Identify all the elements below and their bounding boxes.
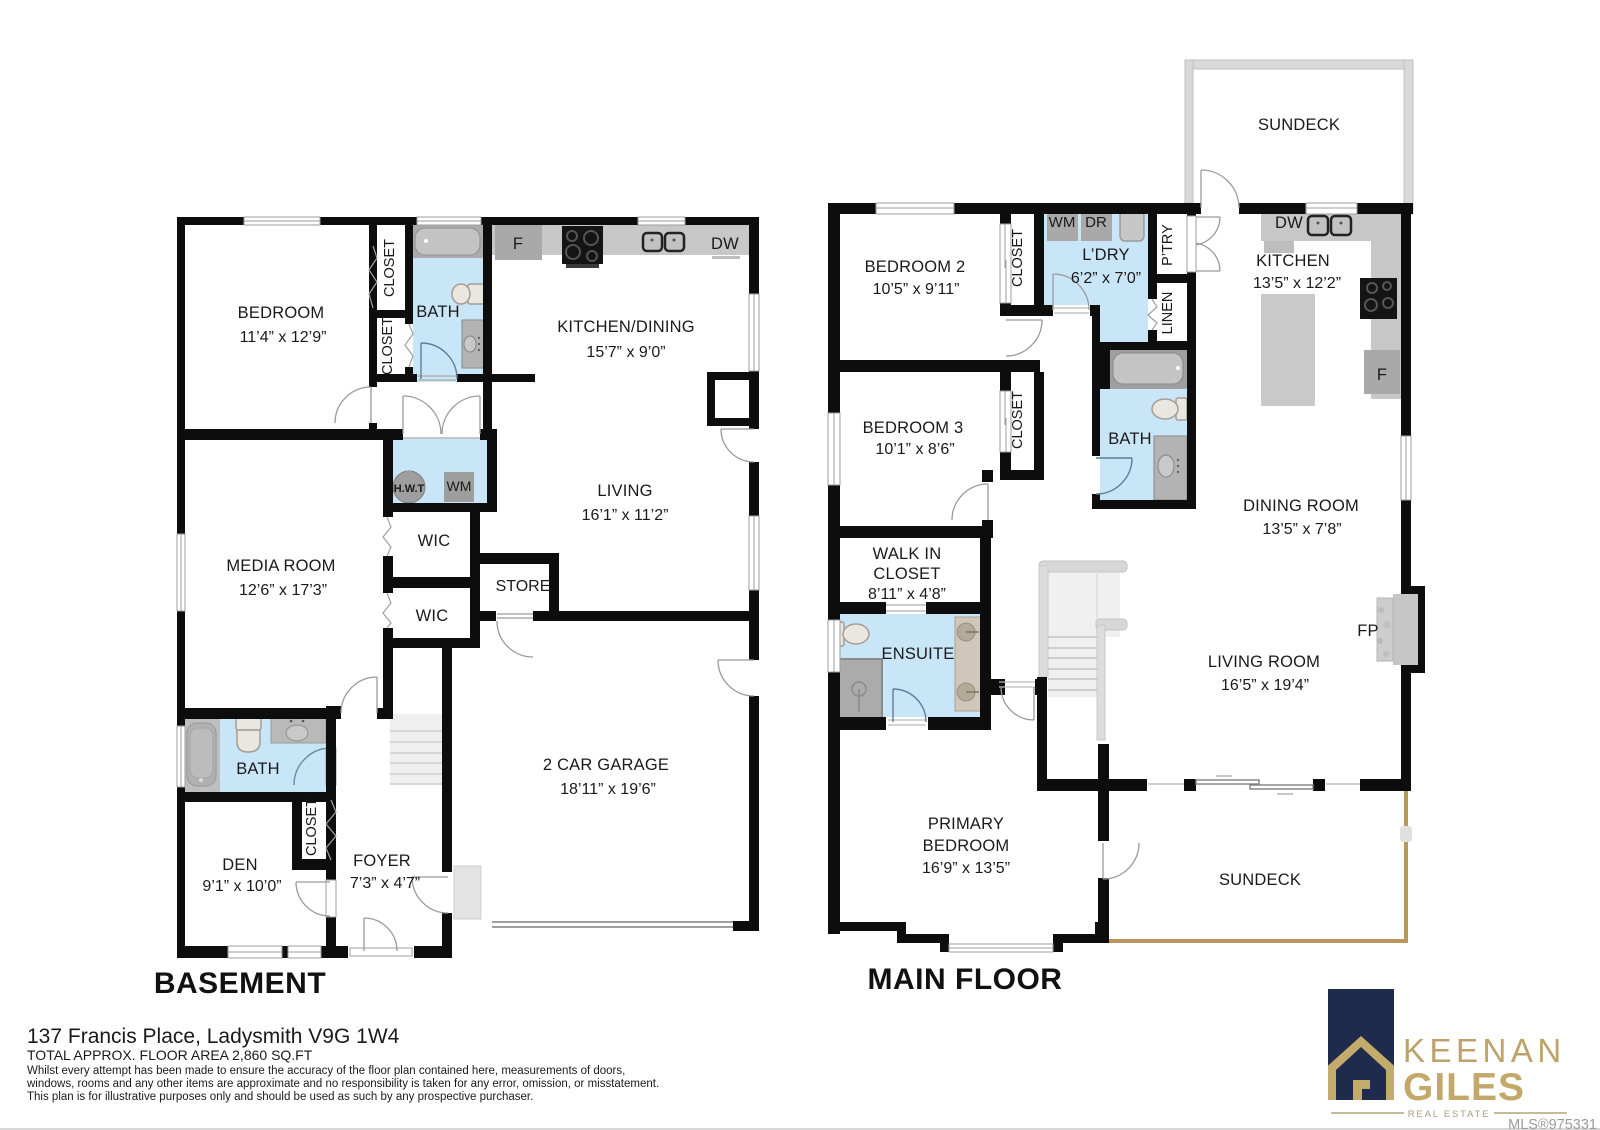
svg-text:GILES: GILES: [1403, 1066, 1525, 1109]
svg-text:SUNDECK: SUNDECK: [1258, 116, 1340, 134]
svg-text:TOTAL APPROX. FLOOR AREA 2,860: TOTAL APPROX. FLOOR AREA 2,860 SQ.FT: [27, 1047, 313, 1063]
svg-text:MAIN FLOOR: MAIN FLOOR: [868, 963, 1063, 996]
svg-text:BATH: BATH: [1108, 430, 1152, 448]
svg-text:WM: WM: [447, 478, 472, 494]
svg-text:BASEMENT: BASEMENT: [154, 967, 326, 1000]
svg-text:P’TRY: P’TRY: [1160, 224, 1176, 266]
svg-text:F: F: [513, 235, 523, 253]
svg-text:CLOSET: CLOSET: [382, 239, 398, 297]
svg-text:LIVING: LIVING: [597, 482, 652, 500]
svg-text:WIC: WIC: [418, 532, 451, 550]
svg-text:16’5” x 19’4”: 16’5” x 19’4”: [1221, 677, 1309, 694]
svg-text:12’6” x 17’3”: 12’6” x 17’3”: [239, 582, 327, 599]
svg-text:KEENAN: KEENAN: [1403, 1032, 1566, 1069]
svg-text:FOYER: FOYER: [353, 852, 411, 870]
svg-text:18’11” x 19’6”: 18’11” x 19’6”: [560, 781, 656, 798]
svg-text:DINING ROOM: DINING ROOM: [1243, 497, 1359, 515]
svg-text:LINEN: LINEN: [1160, 292, 1176, 335]
svg-text:16’1” x 11’2”: 16’1” x 11’2”: [582, 507, 669, 524]
svg-text:8’11” x 4’8”: 8’11” x 4’8”: [868, 586, 946, 603]
svg-text:WALK IN: WALK IN: [873, 545, 942, 563]
svg-text:H.W.T: H.W.T: [394, 483, 425, 495]
svg-text:SUNDECK: SUNDECK: [1219, 871, 1301, 889]
svg-text:7’3” x 4’7”: 7’3” x 4’7”: [350, 875, 420, 892]
svg-text:BATH: BATH: [416, 303, 460, 321]
svg-text:ENSUITE: ENSUITE: [882, 645, 955, 663]
svg-text:137 Francis Place, Ladysmith V: 137 Francis Place, Ladysmith V9G 1W4: [27, 1025, 400, 1048]
svg-text:2 CAR GARAGE: 2 CAR GARAGE: [543, 756, 669, 774]
svg-text:11’4” x 12’9”: 11’4” x 12’9”: [240, 329, 327, 346]
svg-text:PRIMARY: PRIMARY: [928, 815, 1004, 833]
svg-text:F: F: [1377, 366, 1387, 384]
svg-text:BEDROOM 2: BEDROOM 2: [865, 258, 966, 276]
svg-text:KITCHEN: KITCHEN: [1256, 252, 1330, 270]
svg-text:CLOSET: CLOSET: [873, 565, 940, 583]
svg-text:L’DRY: L’DRY: [1082, 246, 1129, 264]
svg-text:MEDIA ROOM: MEDIA ROOM: [226, 557, 335, 575]
svg-text:REAL ESTATE: REAL ESTATE: [1408, 1109, 1490, 1120]
svg-text:6’2” x 7’0”: 6’2” x 7’0”: [1071, 270, 1141, 287]
svg-text:10’5” x 9’11”: 10’5” x 9’11”: [873, 281, 960, 298]
svg-text:10’1” x 8’6”: 10’1” x 8’6”: [875, 441, 954, 458]
svg-text:This plan is for illustrative: This plan is for illustrative purposes o…: [27, 1091, 533, 1103]
svg-text:9’1” x 10’0”: 9’1” x 10’0”: [202, 878, 281, 895]
svg-text:15’7” x 9’0”: 15’7” x 9’0”: [586, 344, 665, 361]
svg-text:BATH: BATH: [236, 760, 280, 778]
svg-text:CLOSET: CLOSET: [380, 317, 396, 375]
svg-text:Whilst every attempt has been: Whilst every attempt has been made to en…: [27, 1065, 625, 1077]
svg-text:16’9” x 13’5”: 16’9” x 13’5”: [922, 860, 1010, 877]
svg-text:MLS®975331: MLS®975331: [1508, 1117, 1597, 1130]
svg-text:CLOSET: CLOSET: [1010, 391, 1026, 449]
svg-text:WIC: WIC: [416, 607, 449, 625]
svg-text:DW: DW: [711, 235, 739, 253]
svg-text:WM: WM: [1049, 214, 1076, 231]
svg-text:windows, rooms and any other i: windows, rooms and any other items are a…: [26, 1078, 659, 1090]
svg-text:STORE: STORE: [496, 578, 551, 595]
svg-text:BEDROOM: BEDROOM: [923, 837, 1010, 855]
svg-text:13’5” x 12’2”: 13’5” x 12’2”: [1253, 275, 1341, 292]
svg-text:CLOSET: CLOSET: [304, 798, 320, 856]
svg-text:DR: DR: [1085, 214, 1107, 231]
svg-text:FP: FP: [1357, 622, 1378, 640]
svg-text:DEN: DEN: [222, 856, 257, 874]
svg-text:CLOSET: CLOSET: [1010, 229, 1026, 287]
svg-text:LIVING ROOM: LIVING ROOM: [1208, 653, 1320, 671]
svg-text:DW: DW: [1275, 214, 1303, 232]
svg-text:BEDROOM: BEDROOM: [238, 304, 325, 322]
svg-text:KITCHEN/DINING: KITCHEN/DINING: [557, 318, 695, 336]
svg-text:BEDROOM 3: BEDROOM 3: [863, 419, 964, 437]
svg-text:13’5” x 7’8”: 13’5” x 7’8”: [1262, 521, 1341, 538]
